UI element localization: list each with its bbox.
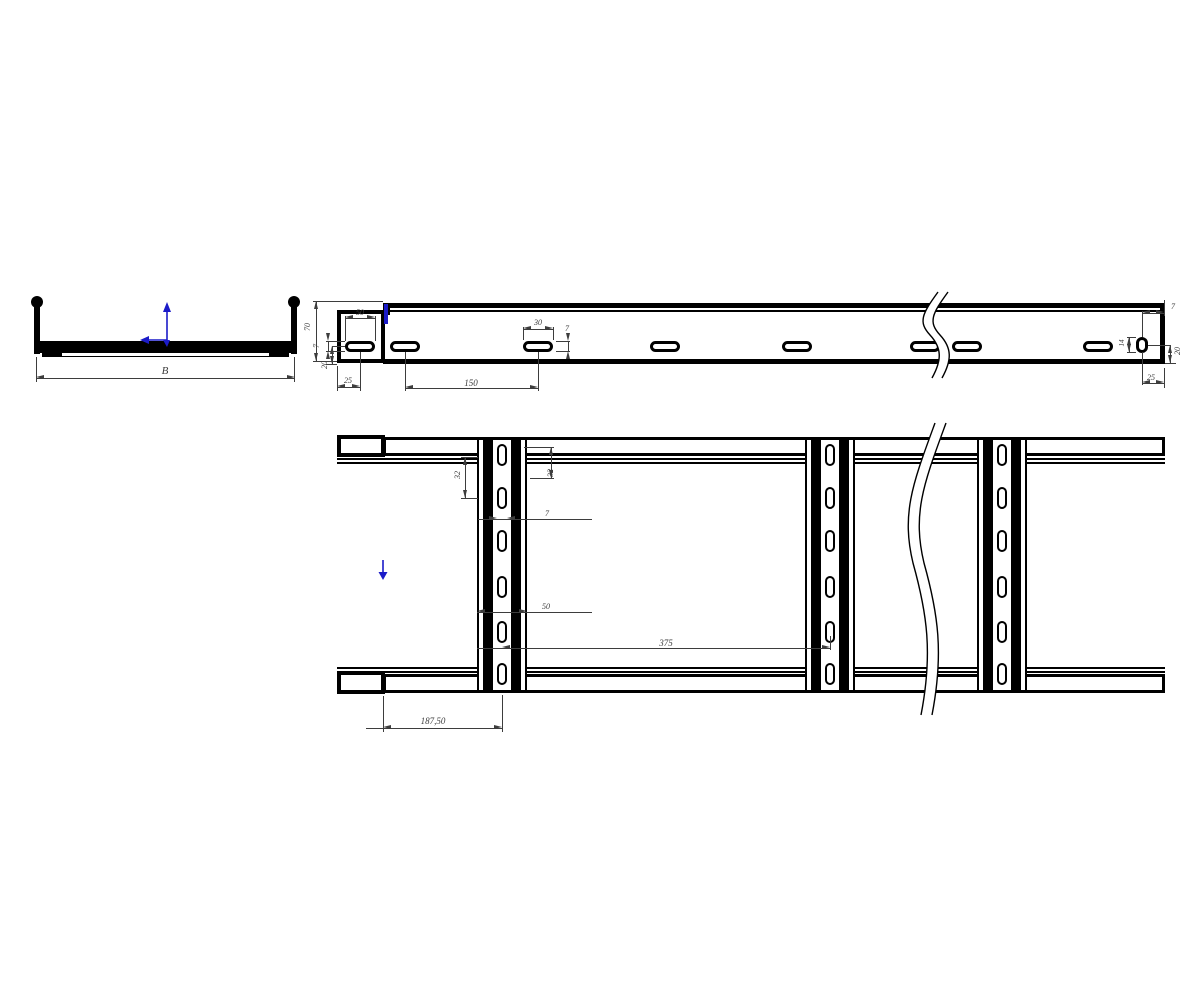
rail-inner-edge (337, 671, 1165, 673)
rung-slot (997, 530, 1007, 552)
drawing-canvas: B 50 (0, 0, 1200, 1000)
dim-label-rung-slot-width: 7 (540, 509, 554, 519)
rung-slot (497, 621, 507, 643)
rail-outer-edge (383, 437, 1165, 440)
rung-slot (497, 444, 507, 466)
rung-slot (997, 621, 1007, 643)
bottom-rail-end-cap (337, 671, 385, 694)
rung-slot (497, 663, 507, 685)
rung-slot (825, 444, 835, 466)
dim-label-rung-slot-pitch-left: 32 (453, 467, 463, 483)
dim-label-rung-width: 50 (536, 602, 556, 612)
dim-label-rung-pitch: 375 (646, 638, 686, 648)
rung-slot (997, 487, 1007, 509)
rung-slot (497, 530, 507, 552)
top-rail-end-cap (337, 435, 385, 457)
rung-slot (997, 576, 1007, 598)
down-arrow-icon (377, 560, 389, 580)
rung-slot (997, 663, 1007, 685)
rung-slot (825, 530, 835, 552)
rung-slot (997, 444, 1007, 466)
rung-slot (825, 663, 835, 685)
rail-inner-edge (337, 667, 1165, 669)
rail-outer-edge (383, 690, 1165, 693)
dim-label-end-to-first-rung: 187,50 (403, 716, 463, 726)
rail-inner-edge (337, 462, 1165, 464)
rung-slot (497, 487, 507, 509)
rung-slot (825, 576, 835, 598)
rung-slot (497, 576, 507, 598)
break-line (893, 423, 971, 715)
dim-label-rung-slot-pitch-right: 32 (546, 465, 556, 481)
plan-view: 32 32 7 50 (0, 0, 1200, 1000)
rail-inner-edge (337, 458, 1165, 460)
rung-slot (825, 487, 835, 509)
